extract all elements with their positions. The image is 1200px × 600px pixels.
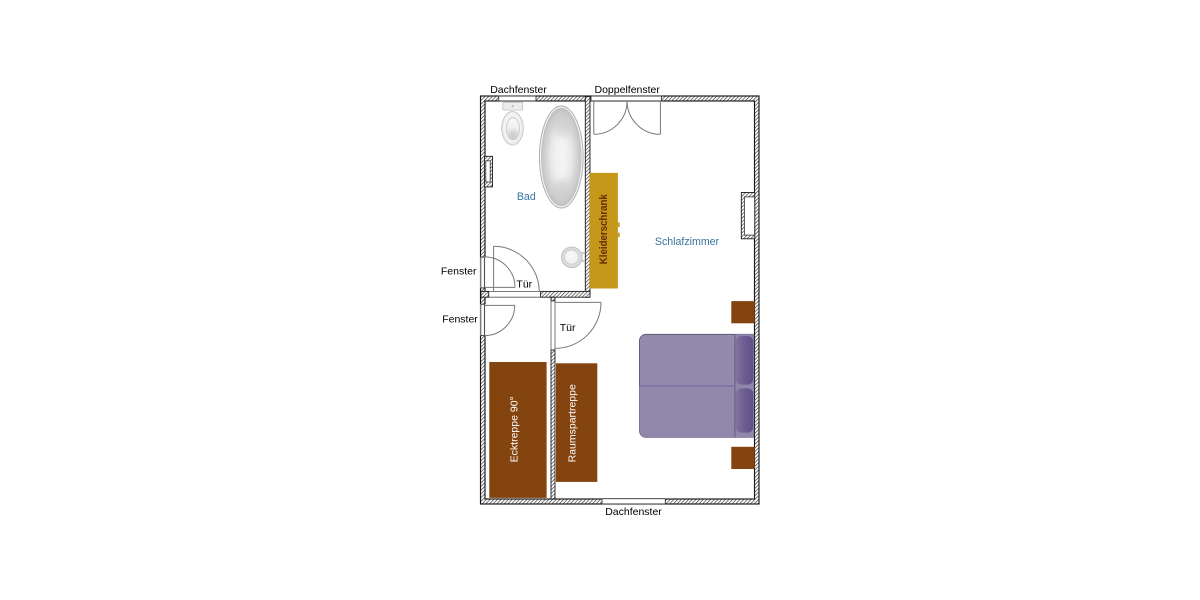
svg-text:Fenster: Fenster [441, 266, 477, 278]
svg-text:Ecktreppe 90°: Ecktreppe 90° [509, 396, 521, 462]
svg-text:Dachfenster: Dachfenster [605, 506, 662, 518]
svg-text:Tür: Tür [560, 322, 576, 334]
svg-text:Fenster: Fenster [442, 313, 478, 325]
svg-text:Dachfenster: Dachfenster [490, 84, 547, 96]
svg-text:Schlafzimmer: Schlafzimmer [655, 236, 720, 248]
svg-text:Raumspartreppe: Raumspartreppe [566, 384, 578, 462]
svg-text:Kleiderschrank: Kleiderschrank [598, 194, 610, 265]
svg-text:Tür: Tür [516, 279, 532, 291]
svg-text:Doppelfenster: Doppelfenster [595, 84, 661, 96]
svg-text:Bad: Bad [517, 191, 536, 203]
